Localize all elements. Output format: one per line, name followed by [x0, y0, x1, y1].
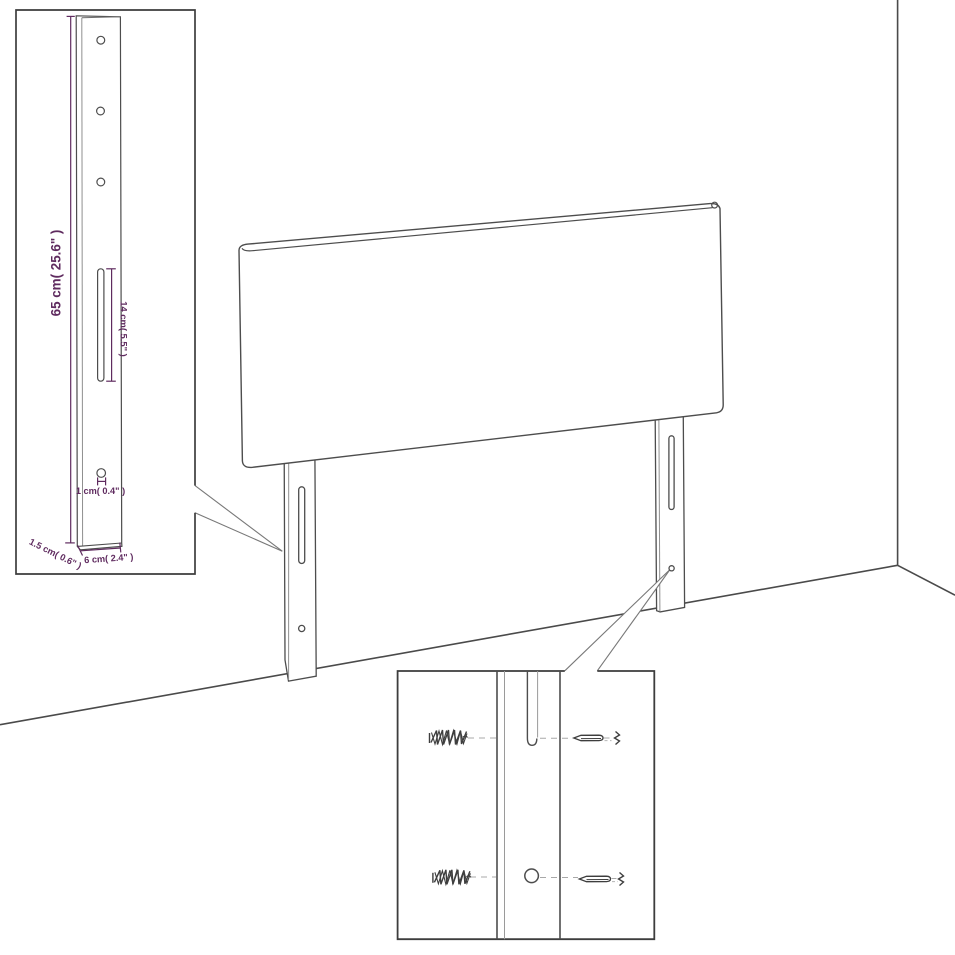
svg-text:1 cm( 0.4" ): 1 cm( 0.4" ) [76, 486, 125, 496]
svg-text:65 cm( 25.6" ): 65 cm( 25.6" ) [49, 230, 64, 317]
svg-text:14 cm( 5.5" ): 14 cm( 5.5" ) [119, 301, 130, 357]
